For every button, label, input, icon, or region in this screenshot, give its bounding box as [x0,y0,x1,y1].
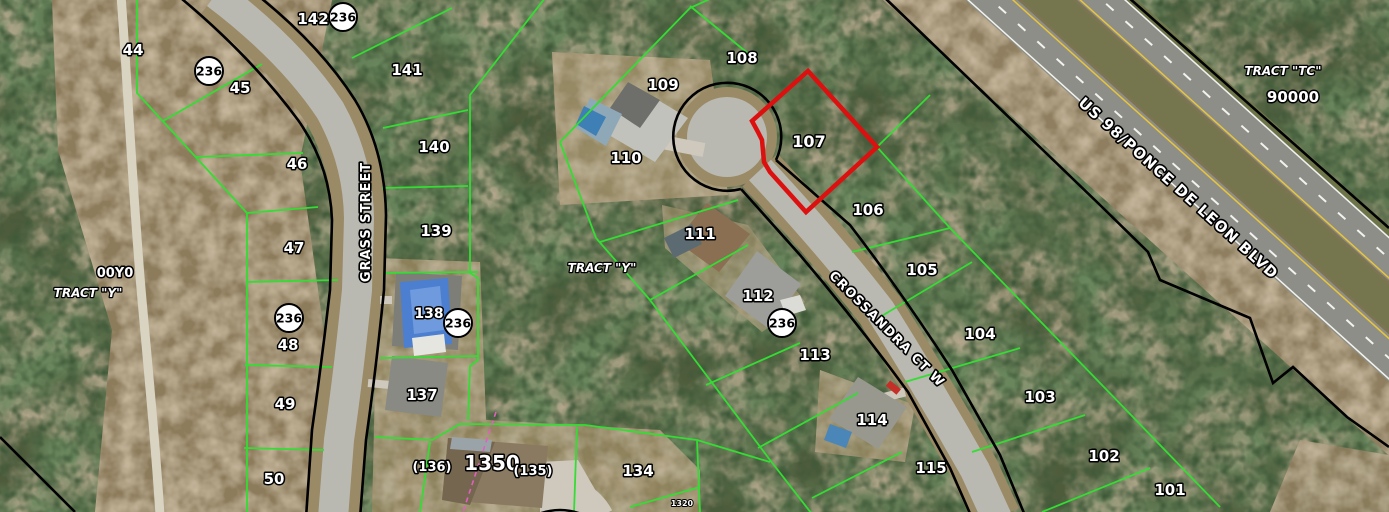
lot-label-101: 101 [1154,481,1185,499]
lot-label-139: 139 [420,222,451,240]
plat-circle-text: 236 [445,316,471,331]
driveway-lot-137 [368,383,390,385]
street-label-grassstreet: GRASS STREET [359,162,374,282]
map-viewport[interactable]: 44454647484950142141140139138137(136)135… [0,0,1389,512]
plat-circle-236-3: 236 [444,309,472,337]
tract-label-tracttc: TRACT "TC" [1244,64,1321,78]
lot-label-104: 104 [964,325,995,343]
lot-label-134: 134 [622,462,653,480]
lot-label-115: 115 [915,459,946,477]
lot-label-90000: 90000 [1267,88,1319,106]
lot-label-103: 103 [1024,388,1055,406]
lot-label-00y0: 00Y0 [97,266,134,281]
lot-label-112: 112 [742,287,773,305]
plat-circle-text: 236 [769,316,795,331]
lot-label-107: 107 [792,132,825,151]
plat-circle-text: 236 [196,64,222,79]
lot-label-1320: 1320 [671,499,694,508]
lot-label-135: (135) [513,464,552,479]
lot-label-109: 109 [647,76,678,94]
plat-circle-236-2: 236 [275,304,303,332]
lot-label-136: (136) [412,460,451,475]
lot-label-47: 47 [284,239,305,257]
lot-label-50: 50 [264,470,285,488]
lot-label-45: 45 [230,79,251,97]
plat-circle-text: 236 [330,10,356,25]
lot-label-137: 137 [406,386,437,404]
plat-circle-text: 236 [276,311,302,326]
tract-label-tracty: TRACT "Y" [568,261,637,275]
culdesac-pavement [687,97,767,177]
lot-label-106: 106 [852,201,883,219]
plat-circle-236-1: 236 [329,3,357,31]
lot-label-1350: 1350 [464,451,520,475]
lot-label-142: 142 [297,10,328,28]
lot-label-141: 141 [391,61,422,79]
lot-label-140: 140 [418,138,449,156]
plat-circle-236-0: 236 [195,57,223,85]
map-canvas[interactable]: 44454647484950142141140139138137(136)135… [0,0,1389,512]
lot-label-108: 108 [726,49,757,67]
plat-circle-236-4: 236 [768,309,796,337]
lot-label-102: 102 [1088,447,1119,465]
lot-label-110: 110 [610,149,641,167]
lot-label-138: 138 [414,306,443,322]
lot-label-46: 46 [287,155,308,173]
lot-label-44: 44 [123,41,144,59]
lot-label-111: 111 [684,225,715,243]
tract-label-tracty: TRACT "Y" [54,286,123,300]
lot-label-114: 114 [856,411,887,429]
lot-label-49: 49 [275,395,296,413]
lot-label-113: 113 [799,346,830,364]
lot-label-48: 48 [278,336,299,354]
lot-label-105: 105 [906,261,937,279]
